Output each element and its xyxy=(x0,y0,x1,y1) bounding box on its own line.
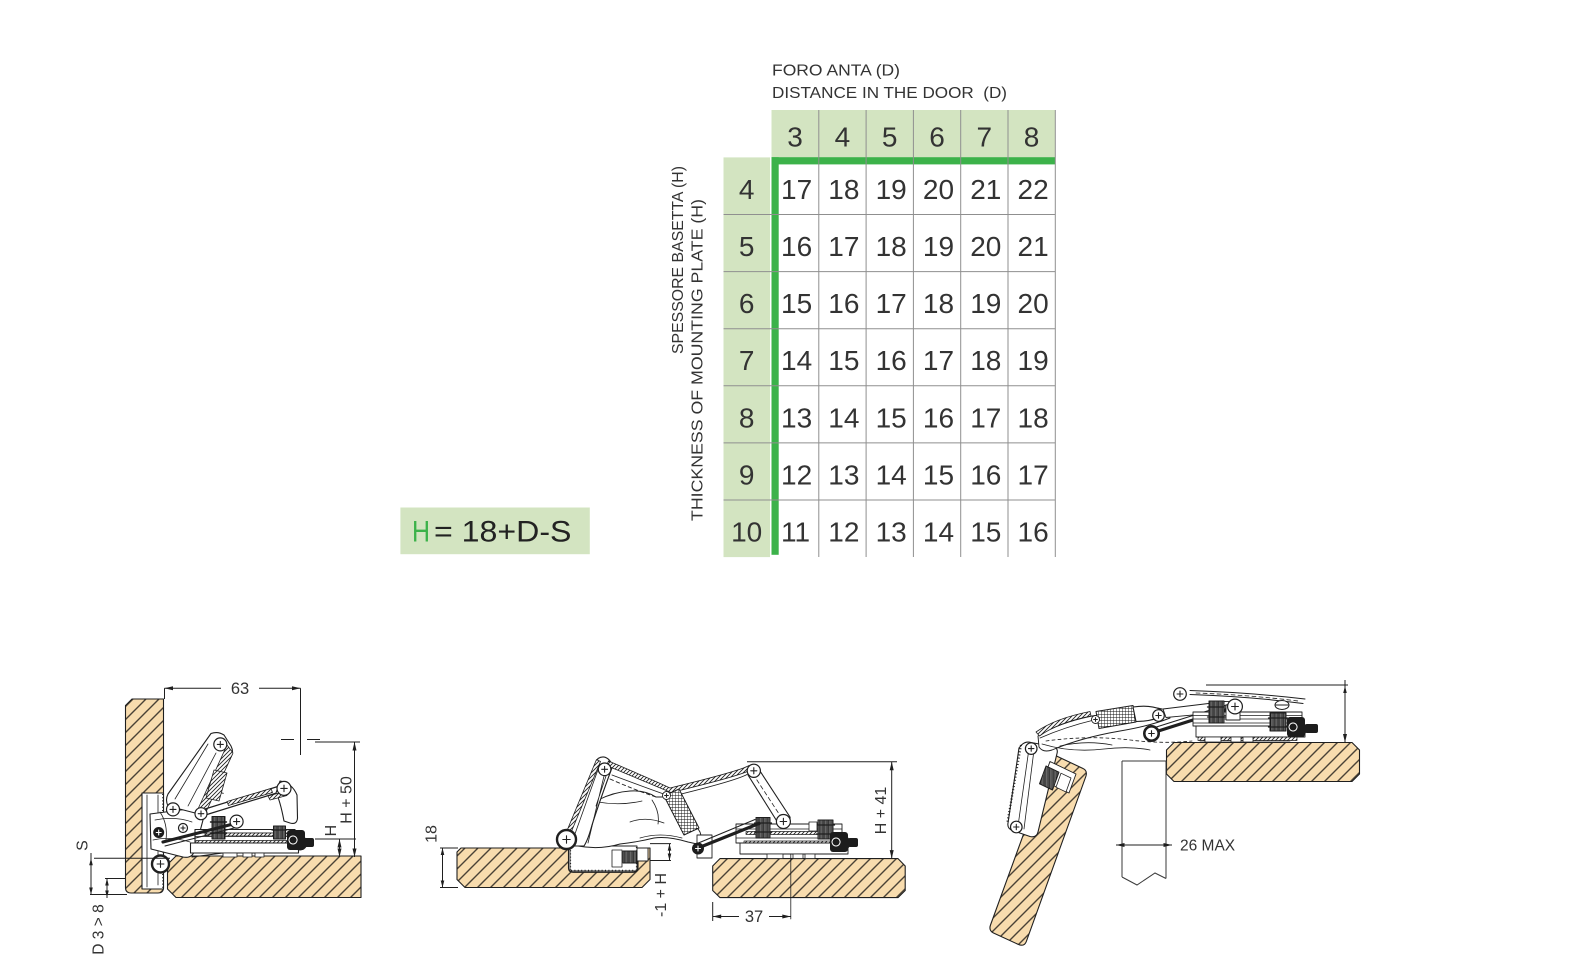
svg-text:12: 12 xyxy=(828,517,859,548)
svg-text:H: H xyxy=(323,825,340,837)
svg-text:14: 14 xyxy=(828,402,859,433)
svg-text:21: 21 xyxy=(970,174,1001,205)
svg-text:16: 16 xyxy=(781,231,812,262)
svg-text:= 18+D-S: = 18+D-S xyxy=(434,516,572,549)
svg-text:FORO ANTA (D): FORO ANTA (D) xyxy=(772,63,900,80)
svg-text:20: 20 xyxy=(970,231,1001,262)
svg-text:8: 8 xyxy=(739,402,755,433)
svg-text:-1 + H: -1 + H xyxy=(653,873,670,917)
svg-text:15: 15 xyxy=(923,459,954,490)
svg-text:H + 41: H + 41 xyxy=(873,787,890,835)
svg-text:4: 4 xyxy=(739,174,755,205)
svg-text:16: 16 xyxy=(970,459,1001,490)
svg-text:37: 37 xyxy=(745,908,763,926)
svg-text:18: 18 xyxy=(923,288,954,319)
svg-text:15: 15 xyxy=(781,288,812,319)
svg-text:14: 14 xyxy=(781,345,812,376)
svg-text:20: 20 xyxy=(923,174,954,205)
svg-text:17: 17 xyxy=(970,402,1001,433)
svg-text:16: 16 xyxy=(876,345,907,376)
svg-text:SPESSORE BASETTA (H): SPESSORE BASETTA (H) xyxy=(670,166,687,354)
svg-text:17: 17 xyxy=(876,288,907,319)
svg-text:26 MAX: 26 MAX xyxy=(1180,838,1236,855)
svg-text:6: 6 xyxy=(929,121,945,152)
svg-text:16: 16 xyxy=(923,402,954,433)
svg-text:H: H xyxy=(412,516,430,549)
svg-text:15: 15 xyxy=(828,345,859,376)
svg-text:18: 18 xyxy=(828,174,859,205)
svg-text:11: 11 xyxy=(781,517,810,548)
svg-text:D 3 > 8: D 3 > 8 xyxy=(91,904,108,954)
svg-text:17: 17 xyxy=(828,231,859,262)
svg-text:20: 20 xyxy=(1018,288,1049,319)
svg-text:18: 18 xyxy=(1018,402,1049,433)
svg-text:6: 6 xyxy=(739,288,755,319)
svg-text:7: 7 xyxy=(739,345,755,376)
svg-text:7: 7 xyxy=(977,121,993,152)
svg-text:12: 12 xyxy=(781,459,812,490)
svg-text:17: 17 xyxy=(781,174,812,205)
svg-text:5: 5 xyxy=(882,121,898,152)
svg-text:15: 15 xyxy=(970,517,1001,548)
svg-text:8: 8 xyxy=(1024,121,1040,152)
svg-text:17: 17 xyxy=(923,345,954,376)
svg-text:19: 19 xyxy=(970,288,1001,319)
svg-text:13: 13 xyxy=(781,402,812,433)
svg-text:4: 4 xyxy=(835,121,851,152)
svg-text:15: 15 xyxy=(876,402,907,433)
svg-text:16: 16 xyxy=(828,288,859,319)
svg-text:19: 19 xyxy=(1018,345,1049,376)
svg-text:19: 19 xyxy=(876,174,907,205)
svg-text:THICKNESS OF MOUNTING PLATE (H: THICKNESS OF MOUNTING PLATE (H) xyxy=(690,199,707,521)
svg-text:13: 13 xyxy=(828,459,859,490)
svg-text:10: 10 xyxy=(731,517,762,548)
svg-text:14: 14 xyxy=(923,517,954,548)
svg-text:13: 13 xyxy=(876,517,907,548)
svg-text:DISTANCE IN THE DOOR (D): DISTANCE IN THE DOOR (D) xyxy=(772,85,1007,102)
svg-text:3: 3 xyxy=(787,121,803,152)
svg-text:18: 18 xyxy=(876,231,907,262)
svg-text:5: 5 xyxy=(739,231,755,262)
svg-text:9: 9 xyxy=(739,459,755,490)
svg-text:19: 19 xyxy=(923,231,954,262)
svg-text:17: 17 xyxy=(1018,459,1049,490)
svg-text:21: 21 xyxy=(1018,231,1049,262)
svg-text:18: 18 xyxy=(970,345,1001,376)
svg-text:16: 16 xyxy=(1018,517,1049,548)
svg-text:S: S xyxy=(75,840,92,851)
svg-text:22: 22 xyxy=(1018,174,1049,205)
svg-text:18: 18 xyxy=(424,825,441,843)
svg-text:14: 14 xyxy=(876,459,907,490)
svg-text:H + 50: H + 50 xyxy=(339,776,356,824)
svg-text:63: 63 xyxy=(231,680,249,698)
